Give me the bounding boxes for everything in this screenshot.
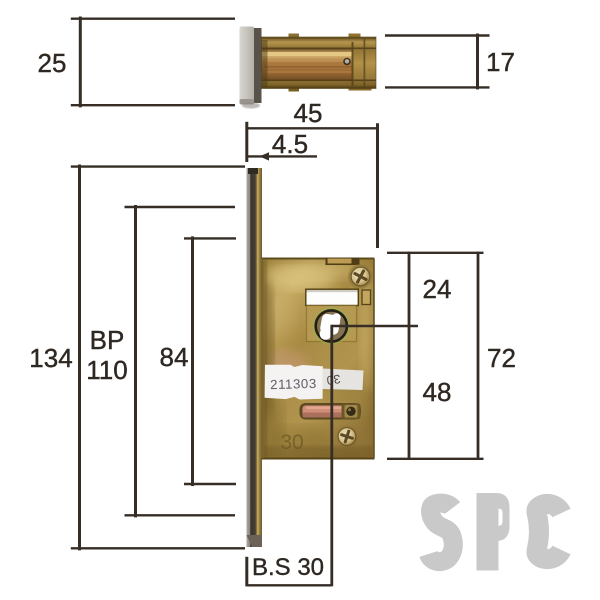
- svg-text:45: 45: [294, 98, 323, 128]
- svg-text:72: 72: [487, 343, 516, 373]
- svg-text:48: 48: [423, 377, 452, 407]
- svg-text:134: 134: [29, 343, 72, 373]
- svg-text:110: 110: [86, 355, 127, 385]
- svg-text:211303: 211303: [270, 376, 317, 392]
- svg-text:17: 17: [486, 47, 515, 77]
- svg-text:30: 30: [326, 372, 342, 388]
- svg-text:25: 25: [38, 48, 67, 78]
- svg-text:24: 24: [423, 274, 452, 304]
- svg-text:84: 84: [160, 342, 189, 372]
- svg-text:B.S 30: B.S 30: [252, 554, 324, 581]
- svg-text:4.5: 4.5: [272, 129, 308, 159]
- svg-text:BP: BP: [90, 325, 125, 355]
- svg-text:30: 30: [280, 431, 303, 454]
